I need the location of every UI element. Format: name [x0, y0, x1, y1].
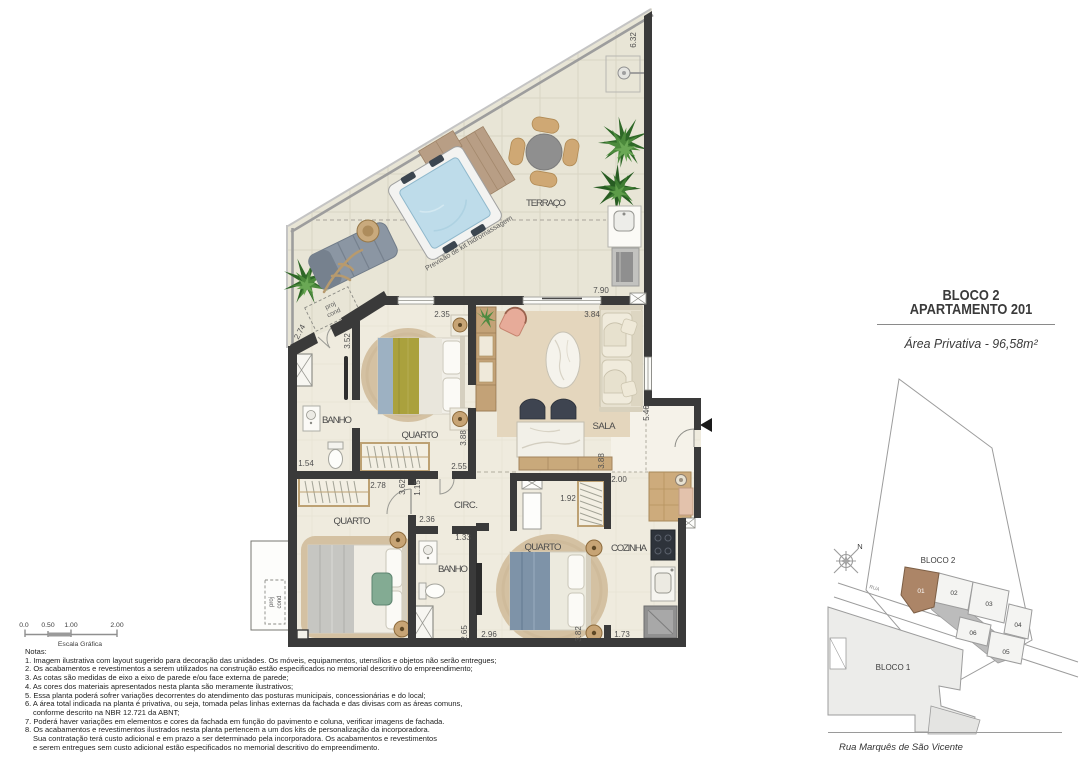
svg-text:2.36: 2.36 [419, 515, 435, 524]
svg-text:BLOCO 1: BLOCO 1 [876, 663, 911, 672]
svg-text:QUARTO: QUARTO [334, 516, 371, 527]
svg-text:2.78: 2.78 [370, 481, 386, 490]
svg-text:3.82: 3.82 [574, 626, 583, 642]
svg-text:06: 06 [969, 630, 977, 637]
svg-text:01: 01 [917, 588, 925, 595]
svg-text:1.33: 1.33 [455, 533, 471, 542]
svg-text:02: 02 [950, 590, 958, 597]
svg-text:03: 03 [985, 601, 993, 608]
svg-text:7.90: 7.90 [593, 286, 609, 295]
svg-text:2.65: 2.65 [460, 625, 469, 641]
svg-text:2.35: 2.35 [434, 310, 450, 319]
svg-text:3.88: 3.88 [459, 430, 468, 446]
svg-text:04: 04 [1014, 622, 1022, 629]
svg-text:3.84: 3.84 [584, 310, 600, 319]
svg-text:BANHO: BANHO [438, 564, 468, 575]
svg-text:5.46: 5.46 [642, 405, 651, 421]
svg-text:TERRAÇO: TERRAÇO [526, 198, 566, 209]
svg-text:0.50: 0.50 [41, 622, 54, 629]
svg-text:2.00: 2.00 [611, 475, 627, 484]
svg-text:Escala Gráfica: Escala Gráfica [58, 641, 102, 648]
svg-text:3.52: 3.52 [343, 333, 352, 349]
svg-text:CIRC.: CIRC. [454, 500, 478, 511]
svg-text:05: 05 [1002, 649, 1010, 656]
svg-text:1.54: 1.54 [298, 459, 314, 468]
svg-text:6.32: 6.32 [629, 32, 638, 48]
svg-text:COZINHA: COZINHA [611, 543, 648, 554]
svg-text:1.15: 1.15 [413, 480, 422, 496]
svg-text:BLOCO 2: BLOCO 2 [921, 556, 956, 565]
svg-text:1.00: 1.00 [64, 622, 77, 629]
svg-text:proj: proj [269, 597, 275, 607]
svg-text:2.96: 2.96 [481, 630, 497, 639]
svg-text:cond: cond [277, 595, 283, 608]
svg-text:QUARTO: QUARTO [402, 430, 439, 441]
svg-text:QUARTO: QUARTO [525, 542, 562, 553]
svg-text:0.0: 0.0 [19, 622, 29, 629]
svg-text:SALA: SALA [593, 421, 617, 432]
svg-text:2.00: 2.00 [110, 622, 123, 629]
svg-text:1.92: 1.92 [560, 494, 576, 503]
svg-text:1.73: 1.73 [614, 630, 630, 639]
svg-text:BANHO: BANHO [322, 415, 352, 426]
svg-text:2.55: 2.55 [451, 462, 467, 471]
svg-text:3.88: 3.88 [597, 453, 606, 469]
svg-text:3.62: 3.62 [398, 479, 407, 495]
svg-text:N: N [857, 542, 862, 551]
